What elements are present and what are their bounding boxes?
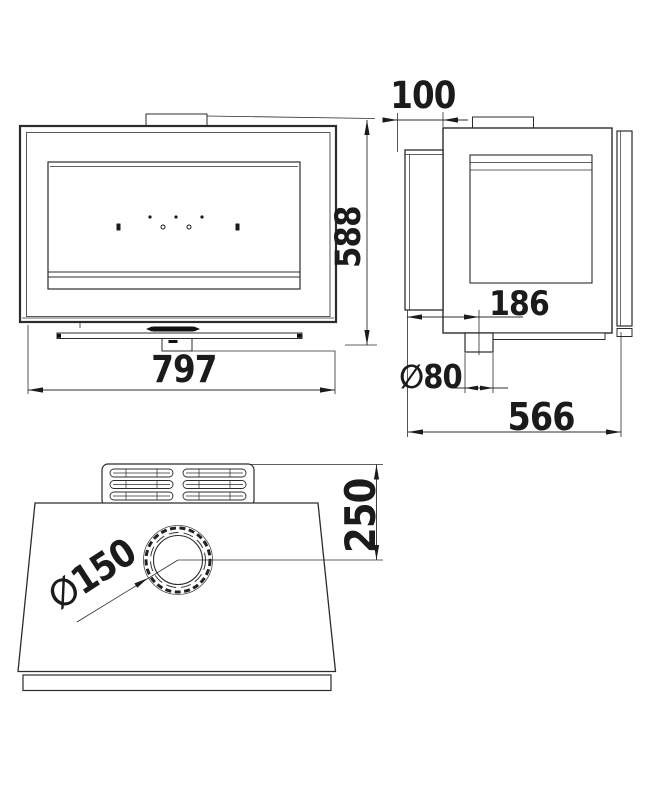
front-air-intake-slot <box>169 340 178 343</box>
dim-side-outlet-diameter: ∅80 <box>399 360 461 393</box>
dim-top-flue-center-offset: 250 <box>340 478 382 553</box>
front-plinth-right-cap <box>297 334 302 338</box>
side-back-plate <box>617 131 632 326</box>
dim-front-width: 797 <box>151 351 213 388</box>
dimension-drawing-page: 797 588 100 186 ∅80 566 250 ∅150 <box>0 0 647 800</box>
dim-side-flue-offset: 100 <box>390 77 452 114</box>
dim-side-depth: 566 <box>508 398 574 436</box>
side-back-plate-foot <box>617 329 632 337</box>
side-firebox <box>470 155 592 283</box>
side-front-plate <box>405 150 443 310</box>
front-flue-tab <box>146 114 207 127</box>
dim-side-outlet-offset: 186 <box>488 287 550 321</box>
side-flue-tab <box>473 117 534 129</box>
top-base-plate <box>23 675 331 691</box>
front-plinth <box>57 333 302 339</box>
front-plinth-left-cap <box>57 334 61 338</box>
front-door-handle <box>146 327 200 332</box>
front-door-window <box>48 162 300 289</box>
dim-front-height: 588 <box>332 206 367 268</box>
